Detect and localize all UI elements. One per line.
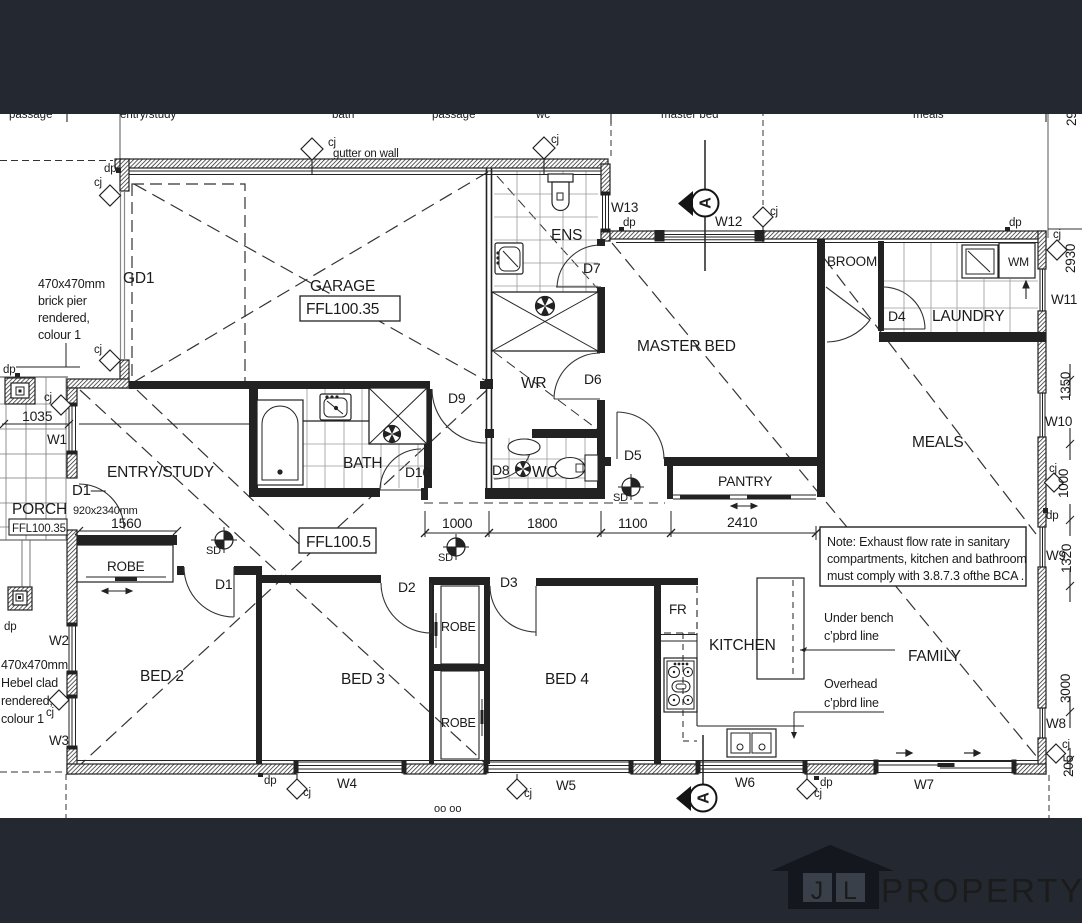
svg-text:Under bench: Under bench — [824, 611, 894, 625]
svg-text:W11: W11 — [1051, 292, 1077, 307]
svg-text:W8: W8 — [1046, 716, 1066, 731]
svg-text:SD: SD — [613, 492, 628, 504]
svg-text:WR: WR — [521, 375, 546, 392]
svg-text:cj: cj — [524, 788, 532, 800]
svg-text:D10: D10 — [405, 464, 430, 480]
svg-text:cj: cj — [44, 392, 52, 404]
svg-text:BATH: BATH — [343, 455, 382, 472]
svg-text:SD: SD — [206, 545, 221, 557]
svg-text:GARAGE: GARAGE — [310, 278, 375, 295]
svg-text:J: J — [811, 877, 824, 905]
svg-text:Overhead: Overhead — [824, 677, 878, 691]
svg-text:compartments, kitchen and bath: compartments, kitchen and bathroom — [827, 552, 1027, 566]
svg-text:D5: D5 — [624, 447, 642, 463]
svg-text:1035: 1035 — [22, 408, 53, 424]
svg-text:cj: cj — [551, 134, 559, 146]
svg-text:D2: D2 — [398, 579, 416, 595]
svg-text:c’pbrd line: c’pbrd line — [824, 629, 879, 643]
svg-text:brick pier: brick pier — [38, 294, 87, 308]
svg-text:dp: dp — [820, 777, 832, 789]
svg-text:cj: cj — [94, 177, 102, 189]
svg-text:BED 2: BED 2 — [140, 668, 184, 685]
svg-text:Note: Exhaust flow rate in san: Note: Exhaust flow rate in sanitary — [827, 535, 1011, 549]
svg-text:PROPERTY: PROPERTY — [881, 873, 1082, 910]
svg-text:cj: cj — [814, 788, 822, 800]
svg-text:1320: 1320 — [1059, 544, 1074, 573]
svg-text:D4: D4 — [888, 308, 906, 324]
svg-text:gutter on wall: gutter on wall — [333, 148, 399, 160]
svg-text:PANTRY: PANTRY — [718, 473, 773, 489]
svg-text:D1—: D1— — [72, 482, 106, 499]
svg-text:PORCH: PORCH — [12, 501, 67, 518]
svg-text:ROBE: ROBE — [441, 716, 476, 730]
svg-text:ENS: ENS — [551, 227, 582, 244]
svg-text:1800: 1800 — [527, 515, 558, 531]
svg-text:ROBE: ROBE — [441, 620, 476, 634]
svg-text:470x470mm: 470x470mm — [38, 277, 105, 291]
svg-text:FAMILY: FAMILY — [908, 648, 961, 665]
svg-text:1000: 1000 — [1056, 469, 1071, 498]
svg-text:D7: D7 — [583, 260, 601, 276]
svg-text:A: A — [698, 197, 715, 209]
svg-text:920x2340mm: 920x2340mm — [73, 505, 138, 517]
svg-text:Hebel clad: Hebel clad — [1, 676, 58, 690]
svg-text:MASTER BED: MASTER BED — [637, 338, 736, 355]
svg-text:dp: dp — [264, 775, 276, 787]
svg-text:W7: W7 — [914, 777, 934, 792]
svg-text:GD1: GD1 — [123, 270, 154, 287]
svg-text:rendered,: rendered, — [1, 694, 53, 708]
svg-text:D1: D1 — [215, 576, 233, 592]
svg-text:2410: 2410 — [727, 514, 758, 530]
svg-text:2930: 2930 — [1063, 244, 1078, 273]
svg-text:WM: WM — [1008, 255, 1029, 269]
svg-text:SD: SD — [438, 552, 453, 564]
svg-text:WC: WC — [532, 464, 557, 481]
svg-text:W6: W6 — [735, 775, 755, 790]
svg-text:dp: dp — [623, 217, 635, 229]
svg-text:1560: 1560 — [111, 515, 142, 531]
svg-text:W12: W12 — [715, 214, 742, 229]
svg-text:colour 1: colour 1 — [1, 712, 44, 726]
svg-text:c’pbrd line: c’pbrd line — [824, 696, 879, 710]
svg-text:W10: W10 — [1045, 414, 1072, 429]
svg-text:FR: FR — [669, 602, 687, 617]
svg-text:FFL100.35: FFL100.35 — [306, 301, 379, 318]
svg-text:W4: W4 — [337, 776, 358, 791]
svg-text:rendered,: rendered, — [38, 311, 90, 325]
svg-text:BED 3: BED 3 — [341, 671, 385, 688]
svg-text:ROBE: ROBE — [107, 559, 145, 574]
svg-text:1000: 1000 — [442, 515, 473, 531]
svg-text:oo oo: oo oo — [434, 803, 462, 815]
svg-text:dp: dp — [4, 621, 16, 633]
svg-text:D6: D6 — [584, 371, 602, 387]
svg-text:dp: dp — [3, 364, 15, 376]
svg-text:cj: cj — [94, 344, 102, 356]
svg-text:cj: cj — [1062, 739, 1070, 751]
svg-text:MEALS: MEALS — [912, 434, 964, 451]
svg-text:FFL100.35: FFL100.35 — [12, 523, 66, 535]
svg-text:W5: W5 — [556, 778, 576, 793]
svg-text:cj: cj — [46, 707, 54, 719]
svg-text:BED 4: BED 4 — [545, 671, 589, 688]
svg-text:1350: 1350 — [1058, 372, 1073, 401]
svg-text:W1: W1 — [47, 432, 67, 447]
svg-text:205: 205 — [1061, 755, 1076, 777]
svg-text:dp: dp — [104, 163, 116, 175]
svg-text:1100: 1100 — [618, 515, 648, 531]
svg-text:D8: D8 — [492, 462, 510, 478]
svg-text:470x470mm: 470x470mm — [1, 658, 68, 672]
svg-text:must comply with 3.8.7.3 ofthe: must comply with 3.8.7.3 ofthe BCA . — [827, 569, 1024, 583]
svg-text:A: A — [696, 792, 713, 804]
svg-text:KITCHEN: KITCHEN — [709, 637, 776, 654]
svg-text:cj: cj — [1053, 229, 1061, 241]
svg-text:BROOM: BROOM — [827, 254, 877, 269]
svg-text:colour 1: colour 1 — [38, 328, 81, 342]
svg-text:L: L — [843, 877, 857, 905]
svg-text:FFL100.5: FFL100.5 — [306, 534, 371, 551]
svg-text:cj: cj — [303, 787, 311, 799]
svg-text:cj: cj — [770, 206, 778, 218]
svg-text:dp: dp — [1009, 217, 1021, 229]
svg-text:D3: D3 — [500, 574, 518, 590]
svg-text:cj: cj — [328, 137, 336, 149]
svg-text:W3: W3 — [49, 733, 69, 748]
svg-text:LAUNDRY: LAUNDRY — [932, 308, 1004, 325]
svg-text:D9: D9 — [448, 390, 466, 406]
svg-text:ENTRY/STUDY: ENTRY/STUDY — [107, 464, 214, 481]
svg-text:W2: W2 — [49, 633, 69, 648]
svg-text:W13: W13 — [611, 200, 638, 215]
svg-text:3000: 3000 — [1058, 674, 1073, 703]
